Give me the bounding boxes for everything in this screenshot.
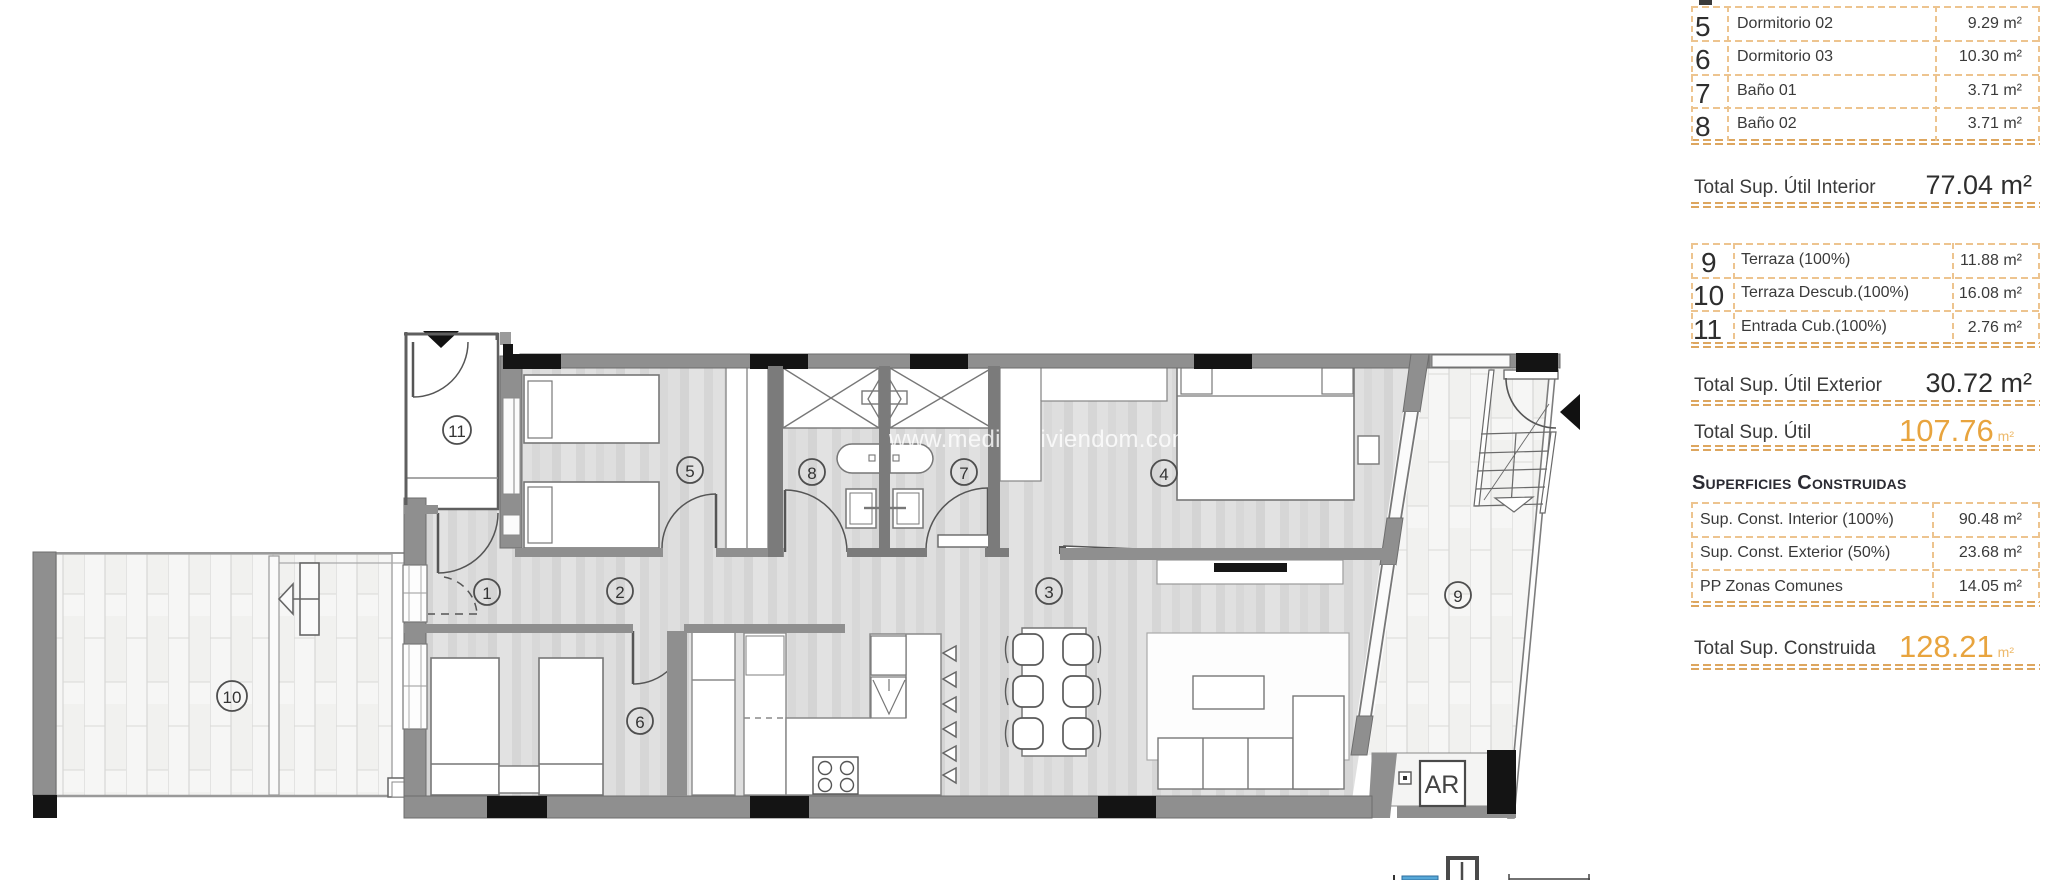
svg-text:8: 8 [807,464,816,483]
svg-text:AR: AR [1425,771,1460,799]
svg-text:3: 3 [1044,583,1053,602]
svg-text:10: 10 [223,688,242,707]
svg-text:2: 2 [615,583,624,602]
svg-text:9: 9 [1453,587,1462,606]
svg-text:11: 11 [448,422,466,441]
svg-text:5: 5 [685,462,694,481]
svg-text:www.medinaviviendom.com: www.medinaviviendom.com [888,426,1192,453]
svg-text:4: 4 [1159,465,1168,484]
svg-text:6: 6 [635,713,644,732]
svg-text:1: 1 [482,584,491,603]
svg-text:7: 7 [959,464,968,483]
